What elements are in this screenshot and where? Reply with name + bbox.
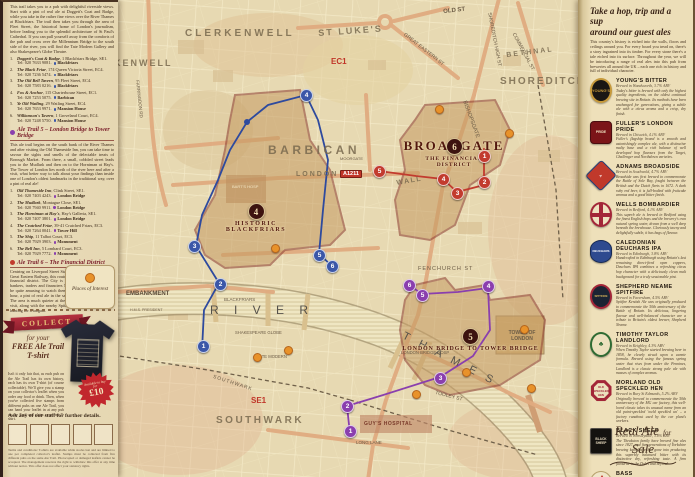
pub-list-item: 5.Ye Old Watling, 29 Watling Street, EC4…: [10, 102, 114, 112]
ale-entry: YOUNG'S YOUNG'S BITTERBrewed in Wandswor…: [590, 78, 686, 116]
tshirt-print: [76, 338, 99, 367]
trail5-stop-marker: 3: [434, 372, 447, 385]
pub-list-item: 1.Old Thameside Inn, Clink Street, SE1.T…: [10, 189, 114, 199]
pub-list-item: 2.The Mudlark, Montague Close, SE1.Tel: …: [10, 201, 114, 211]
stamp-box: [30, 424, 49, 445]
ale-name: TIMOTHY TAYLOR LANDLORD: [616, 332, 686, 344]
poi-dot: [271, 244, 280, 253]
pub-number: 6.: [10, 247, 15, 257]
station-dot-icon: [54, 229, 57, 232]
real-ale-for-sale-mark: Real Ale for Sale: [600, 422, 686, 469]
stamp-box: [73, 424, 92, 445]
guest-ales-title-line1: Take a hop, trip and a sup: [590, 6, 671, 26]
map-label-se1: SE1: [251, 396, 266, 405]
youngs-badge-text: YOUNG'S: [590, 78, 612, 103]
pub-number: 5.: [10, 235, 15, 245]
pub-number: 4.: [10, 224, 15, 234]
map-label-kenwell: KENWELL: [114, 58, 173, 68]
trail5-dot-icon: [10, 130, 15, 135]
landlord-badge-icon: ♣: [590, 332, 612, 376]
ale-brewed: Brewed in Keighley, 4.3% ABV: [616, 344, 686, 348]
map-label-river: R I V E R: [210, 303, 314, 317]
pub-number: 3.: [10, 79, 15, 89]
pub-details: Ye Old Watling, 29 Watling Street, EC4.T…: [17, 102, 86, 112]
ale-brewed: Brewed in Bedford, 4.1% ABV: [616, 208, 686, 212]
pub-station: Blackfriars: [57, 83, 78, 88]
pub-list-item: 4.Fox & Anchor, 115 Charterhouse Street,…: [10, 91, 114, 101]
pub-tel: Tel: 020 7929 3903.Monument: [17, 240, 78, 245]
bass-badge-text: Bass: [590, 471, 612, 477]
ale-entry: WELLS BOMBARDIERBrewed in Bedford, 4.1% …: [590, 202, 686, 235]
ale-brewed: Brewed in Wandsworth, 3.7% ABV: [616, 84, 686, 88]
trail6-stop-marker: 4: [437, 173, 450, 186]
ale-name: CALEDONIAN DEUCHARS IPA: [616, 240, 686, 252]
youngs-badge-icon: YOUNG'S: [590, 78, 612, 116]
pub-details: Old Thameside Inn, Clink Street, SE1.Tel…: [17, 189, 85, 199]
map-label-shakespeare-globe: SHAKESPEARE GLOBE: [235, 330, 282, 335]
trail5-stop-marker: 1: [344, 425, 357, 438]
poi-dot: [520, 325, 529, 334]
station-dot-icon: [54, 62, 57, 65]
pub-number: 4.: [10, 91, 15, 101]
station-dot-icon: [53, 206, 56, 209]
pub-number: 1.: [10, 57, 15, 67]
pub-details: The Bell Inn, 5 Lombard Court, EC3.Tel: …: [17, 247, 83, 257]
pub-number: 3.: [10, 212, 15, 222]
london-pride-badge-icon: PRIDE: [590, 121, 612, 160]
stamp-box: [94, 424, 113, 445]
station-dot-icon: [54, 119, 57, 122]
pub-station: London Bridge: [57, 205, 85, 210]
trail5-stop-marker: 5: [416, 289, 429, 302]
ale-brewed: Brewed in Chiswick, 4.1% ABV: [616, 133, 686, 137]
poi-legend-label: Places of Interest: [66, 286, 114, 292]
ale-description: Spitfire Kentish Ale was originally prod…: [616, 300, 686, 327]
ale-description: Originally brewed to commemorate the 50t…: [616, 397, 686, 424]
pub-tel: Tel: 020 7929 7772.Monument: [17, 252, 83, 257]
station-dot-icon: [54, 85, 57, 88]
pub-station: Blackfriars: [57, 72, 78, 77]
pub-tel-number: Tel: 020 7264 0041.: [17, 228, 52, 233]
district-6-sub2: DISTRICT: [396, 162, 512, 168]
ale-description: Handcrafted in Edinburgh using Britain's…: [616, 256, 686, 279]
pub-station: Monument: [57, 239, 77, 244]
pub-tel: Tel: 020 7253 5075.Barbican: [17, 96, 97, 101]
price-burst-amount: £10: [89, 388, 105, 400]
pub-details: Fox & Anchor, 115 Charterhouse Street, E…: [17, 91, 97, 101]
pub-station: London Bridge: [57, 216, 85, 221]
pub-list-item: 6.Williamson's Tavern, 1 Groveland Court…: [10, 114, 114, 124]
trail5-stop-marker: 2: [341, 400, 354, 413]
staff-note: Ask any of our staff for further details…: [8, 413, 115, 419]
pub-details: The Horniman at Hay's, Hay's Galleria, S…: [17, 212, 96, 222]
stamp-boxes: [8, 424, 113, 445]
map-label-long-lane: LONG LANE: [356, 440, 382, 445]
pub-details: The Mudlark, Montague Close, SE1.Tel: 02…: [17, 201, 85, 211]
ale-name: FULLER'S LONDON PRIDE: [616, 121, 686, 133]
ale-name: MORLAND OLD SPECKLED HEN: [616, 380, 686, 392]
ale-description: Fuller's flagship brand is a smooth and …: [616, 137, 686, 160]
pub-list-item: 6.The Bell Inn, 5 Lombard Court, EC3.Tel…: [10, 247, 114, 257]
poi-dot: [462, 368, 471, 377]
trail5-stop-marker: 4: [482, 280, 495, 293]
station-dot-icon: [54, 108, 57, 111]
ale-name: SHEPHERD NEAME SPITFIRE: [616, 284, 686, 296]
ale-brewed: Brewed in Faversham, 4.5% ABV: [616, 296, 686, 300]
map-label-hms-president: H.M.S. PRESIDENT: [130, 308, 163, 312]
pub-tel-number: Tel: 020 7236 5474.: [17, 72, 52, 77]
poi-dot: [527, 384, 536, 393]
pub-tel-number: Tel: 020 7633 9081.: [17, 60, 52, 65]
poi-dot: [505, 129, 514, 138]
pub-number: 5.: [10, 102, 15, 112]
places-of-interest-legend: Places of Interest: [65, 265, 115, 309]
tshirt-graphic: [59, 319, 115, 383]
district-6-badge: 6: [446, 138, 463, 155]
stamp-box: [51, 424, 70, 445]
trail4-stop-marker: 1: [197, 340, 210, 353]
pub-details: Doggett's Coat & Badge, 1 Blackfriars Br…: [17, 57, 107, 67]
pub-number: 1.: [10, 189, 15, 199]
district-historic-blackfriars: 4 HISTORIC BLACKFRIARS: [213, 203, 299, 233]
pub-list-item: 4.The Crutched Friar, 39-41 Crutched Fri…: [10, 224, 114, 234]
hen-octagon: OLD SPECKLED HEN: [591, 380, 612, 401]
deuchars-badge-text: DEUCHARS: [590, 240, 612, 263]
london-map: CLERKENWELL KENWELL ST LUKE'S EC1 SHORED…: [118, 0, 578, 477]
trail-guide-panel: This trail takes you to a pub with delig…: [0, 0, 118, 477]
pub-tel: Tel: 020 7236 5474.Blackfriars: [17, 73, 104, 78]
speckled-hen-badge-icon: OLD SPECKLED HEN: [590, 380, 612, 424]
pub-tel-number: Tel: 020 7929 7772.: [17, 251, 52, 256]
pub-tel-number: Tel: 020 7653 9971.: [17, 106, 52, 111]
pub-list-item: 1.Doggett's Coat & Badge, 1 Blackfriars …: [10, 57, 114, 67]
ale-brewed: Brewed in Bury St Edmunds, 5.2% ABV: [616, 392, 686, 396]
pride-badge-text: PRIDE: [590, 121, 612, 144]
station-dot-icon: [54, 218, 57, 221]
poi-legend-dot-icon: [85, 273, 95, 283]
trail5-intro: This ale trail begins on the south bank …: [10, 143, 114, 188]
pub-tel-number: Tel: 020 7403 4243.: [17, 193, 52, 198]
pub-tel: Tel: 020 7940 9911.London Bridge: [17, 206, 85, 211]
ale-entry: PRIDE FULLER'S LONDON PRIDEBrewed in Chi…: [590, 121, 686, 160]
trail6-stop-marker: 3: [451, 187, 464, 200]
pub-station: Tower Hill: [57, 228, 76, 233]
poi-dot: [435, 105, 444, 114]
pub-station: Mansion House: [57, 106, 86, 111]
guest-ales-intro: This country's history is etched into th…: [590, 40, 686, 74]
pub-details: The Ship, 11 Talbot Court, EC3.Tel: 020 …: [17, 235, 78, 245]
station-dot-icon: [54, 74, 57, 77]
pub-tel: Tel: 020 7248 5750.Mansion House: [17, 119, 99, 124]
trail5-heading: Ale Trail 5 – London Bridge to Tower Bri…: [10, 127, 114, 141]
pub-tel-number: Tel: 020 7248 5750.: [17, 118, 52, 123]
trail4-pub-list: 1.Doggett's Coat & Badge, 1 Blackfriars …: [10, 57, 114, 124]
trail5-pub-list: 1.Old Thameside Inn, Clink Street, SE1.T…: [10, 189, 114, 256]
district-4-name-line2: BLACKFRIARS: [213, 227, 299, 233]
map-label-fenchurch: FENCHURCH ST: [418, 266, 473, 272]
pub-number: 2.: [10, 68, 15, 78]
pub-tel: Tel: 020 7653 9971.Mansion House: [17, 107, 86, 112]
station-dot-icon: [54, 195, 57, 198]
pub-tel: Tel: 020 7407 3801.London Bridge: [17, 217, 96, 222]
rafs-line1: Real Ale: [615, 423, 659, 438]
trail6-stop-marker: 5: [373, 165, 386, 178]
pub-list-item: 2.The Black Friar, 174 Queen Victoria St…: [10, 68, 114, 78]
pub-tel-number: Tel: 020 7583 0216.: [17, 83, 52, 88]
collect-script-line1: for your: [8, 334, 68, 342]
map-label-london-wall: LONDON: [296, 171, 338, 178]
deuchars-badge-icon: DEUCHARS: [590, 240, 612, 279]
trail4-stop-marker: 5: [313, 249, 326, 262]
spitfire-badge-text: SPITFIRE: [590, 284, 612, 309]
poi-dot: [253, 353, 262, 362]
district-5-name: LONDON BRIDGE TO TOWER BRIDGE: [388, 346, 553, 352]
map-label-clerkenwell: CLERKENWELL: [185, 28, 295, 39]
landlord-badge-text: ♣: [590, 332, 612, 357]
pub-tel-number: Tel: 020 7929 3903.: [17, 239, 52, 244]
rafs-line3: Sale: [632, 441, 654, 456]
pub-details: The Crutched Friar, 39-41 Crutched Friar…: [17, 224, 103, 234]
map-label-barbican: BARBICAN: [268, 143, 360, 157]
ale-brewed: Brewed in Edinburgh, 3.8% ABV: [616, 252, 686, 256]
station-dot-icon: [54, 96, 57, 99]
pub-station: Barbican: [57, 95, 74, 100]
pub-tel: Tel: 020 7403 4243.London Bridge: [17, 194, 85, 199]
map-label-southwark: SOUTHWARK: [216, 415, 304, 426]
guest-ales-panel: Take a hop, trip and a sup around our gu…: [578, 0, 695, 477]
poi-dot: [284, 346, 293, 355]
pub-details: The Black Friar, 174 Queen Victoria Stre…: [17, 68, 104, 78]
pub-list-item: 3.The Old Bell Tavern, 95 Fleet Street, …: [10, 79, 114, 89]
ale-entry: Bass BASSBrewed in Burton upon Trent, 4.…: [590, 471, 686, 477]
ale-entry: OLD SPECKLED HEN MORLAND OLD SPECKLED HE…: [590, 380, 686, 424]
pub-station: Mansion House: [57, 118, 86, 123]
collect-tshirt-offer: COLLECT for your FREE Ale Trail T-shirt …: [8, 314, 115, 475]
spitfire-badge-icon: SPITFIRE: [590, 284, 612, 328]
trail4-stop-marker: 3: [188, 240, 201, 253]
rafs-line2: for: [663, 429, 671, 437]
pub-list-item: 5.The Ship, 11 Talbot Court, EC3.Tel: 02…: [10, 235, 114, 245]
station-dot-icon: [54, 241, 57, 244]
ale-entry: A ADNAMS BROADSIDEBrewed in Southwold, 4…: [590, 164, 686, 197]
pub-number: 6.: [10, 114, 15, 124]
ale-description: When Timothy Taylor started brewing beer…: [616, 348, 686, 375]
trail4-stop-marker: 2: [214, 278, 227, 291]
bass-badge-icon: Bass: [590, 471, 612, 477]
map-label-moorgate: MOORGATE: [340, 156, 363, 161]
pub-number: 2.: [10, 201, 15, 211]
map-label-shoreditch: SHOREDITCH: [500, 76, 586, 87]
rafs-flourish-icon: [608, 459, 678, 469]
poi-dot: [412, 390, 421, 399]
map-label-guys-hospital: GUY'S HOSPITAL: [364, 421, 413, 427]
pub-details: Williamson's Tavern, 1 Groveland Court, …: [17, 114, 99, 124]
trail6-stop-marker: 1: [478, 150, 491, 163]
bombardier-cross: [590, 202, 612, 227]
pub-list-item: 3.The Horniman at Hay's, Hay's Galleria,…: [10, 212, 114, 222]
pub-station: Monument: [57, 251, 77, 256]
pub-station: Blackfriars: [57, 60, 78, 65]
ale-entry: ♣ TIMOTHY TAYLOR LANDLORDBrewed in Keigh…: [590, 332, 686, 376]
ale-entry: SPITFIRE SHEPHERD NEAME SPITFIREBrewed i…: [590, 284, 686, 328]
adnams-badge-text: A: [585, 160, 617, 192]
pub-tel: Tel: 020 7583 0216.Blackfriars: [17, 84, 91, 89]
guest-ales-title-line2: around our guest ales: [590, 27, 671, 37]
station-dot-icon: [54, 252, 57, 255]
pub-station: London Bridge: [57, 193, 85, 198]
map-label-embankment: EMBANKMENT: [126, 291, 169, 297]
pub-tel-number: Tel: 020 7407 3801.: [17, 216, 52, 221]
trail4-intro: This trail takes you to a pub with delig…: [10, 5, 114, 55]
trail5-heading-text: Ale Trail 5 – London Bridge to Tower Bri…: [17, 127, 114, 139]
district-4-badge: 4: [248, 203, 265, 220]
ale-brewed: Brewed in Southwold, 4.7% ABV: [616, 170, 686, 174]
pub-details: The Old Bell Tavern, 95 Fleet Street, EC…: [17, 79, 91, 89]
district-5-badge: 5: [462, 328, 479, 345]
district-broadgate: BROADGATE 6 THE FINANCIAL DISTRICT: [396, 138, 512, 168]
map-label-blackfriars-station: BLACKFRIARS: [224, 297, 255, 302]
ale-description: This superb ale is brewed in Bedford usi…: [616, 213, 686, 236]
trail6-dot-icon: [10, 260, 15, 265]
map-label-barts-hosp: BART'S HOSP: [232, 184, 258, 189]
map-badge-a1211: A1211: [340, 170, 362, 178]
ale-entry: DEUCHARS CALEDONIAN DEUCHARS IPABrewed i…: [590, 240, 686, 279]
pub-tel: Tel: 020 7264 0041.Tower Hill: [17, 229, 103, 234]
ale-trail-map-leaflet: CLERKENWELL KENWELL ST LUKE'S EC1 SHORED…: [0, 0, 695, 477]
trail4-stop-marker: 4: [300, 89, 313, 102]
trail5-stop-marker: 6: [403, 279, 416, 292]
ale-description: Broadside was first brewed to commemorat…: [616, 175, 686, 198]
trail6-stop-marker: 2: [478, 176, 491, 189]
pub-tel: Tel: 020 7633 9081.Blackfriars: [17, 61, 107, 66]
adnams-badge-icon: A: [590, 164, 612, 197]
hen-badge-text: OLD SPECKLED HEN: [594, 383, 609, 398]
guest-ales-title: Take a hop, trip and a sup around our gu…: [590, 6, 686, 37]
pub-tel-number: Tel: 020 7253 5075.: [17, 95, 52, 100]
pub-tel-number: Tel: 020 7940 9911.: [17, 205, 51, 210]
trail4-stop-marker: 6: [326, 260, 339, 273]
terms-and-conditions: Terms and conditions: T-shirts are avail…: [8, 448, 115, 469]
ale-description: Today's bitter is brewed with only the h…: [616, 89, 686, 116]
bombardier-badge-icon: [590, 202, 612, 235]
map-label-ec1: EC1: [331, 57, 347, 66]
stamp-box: [8, 424, 27, 445]
